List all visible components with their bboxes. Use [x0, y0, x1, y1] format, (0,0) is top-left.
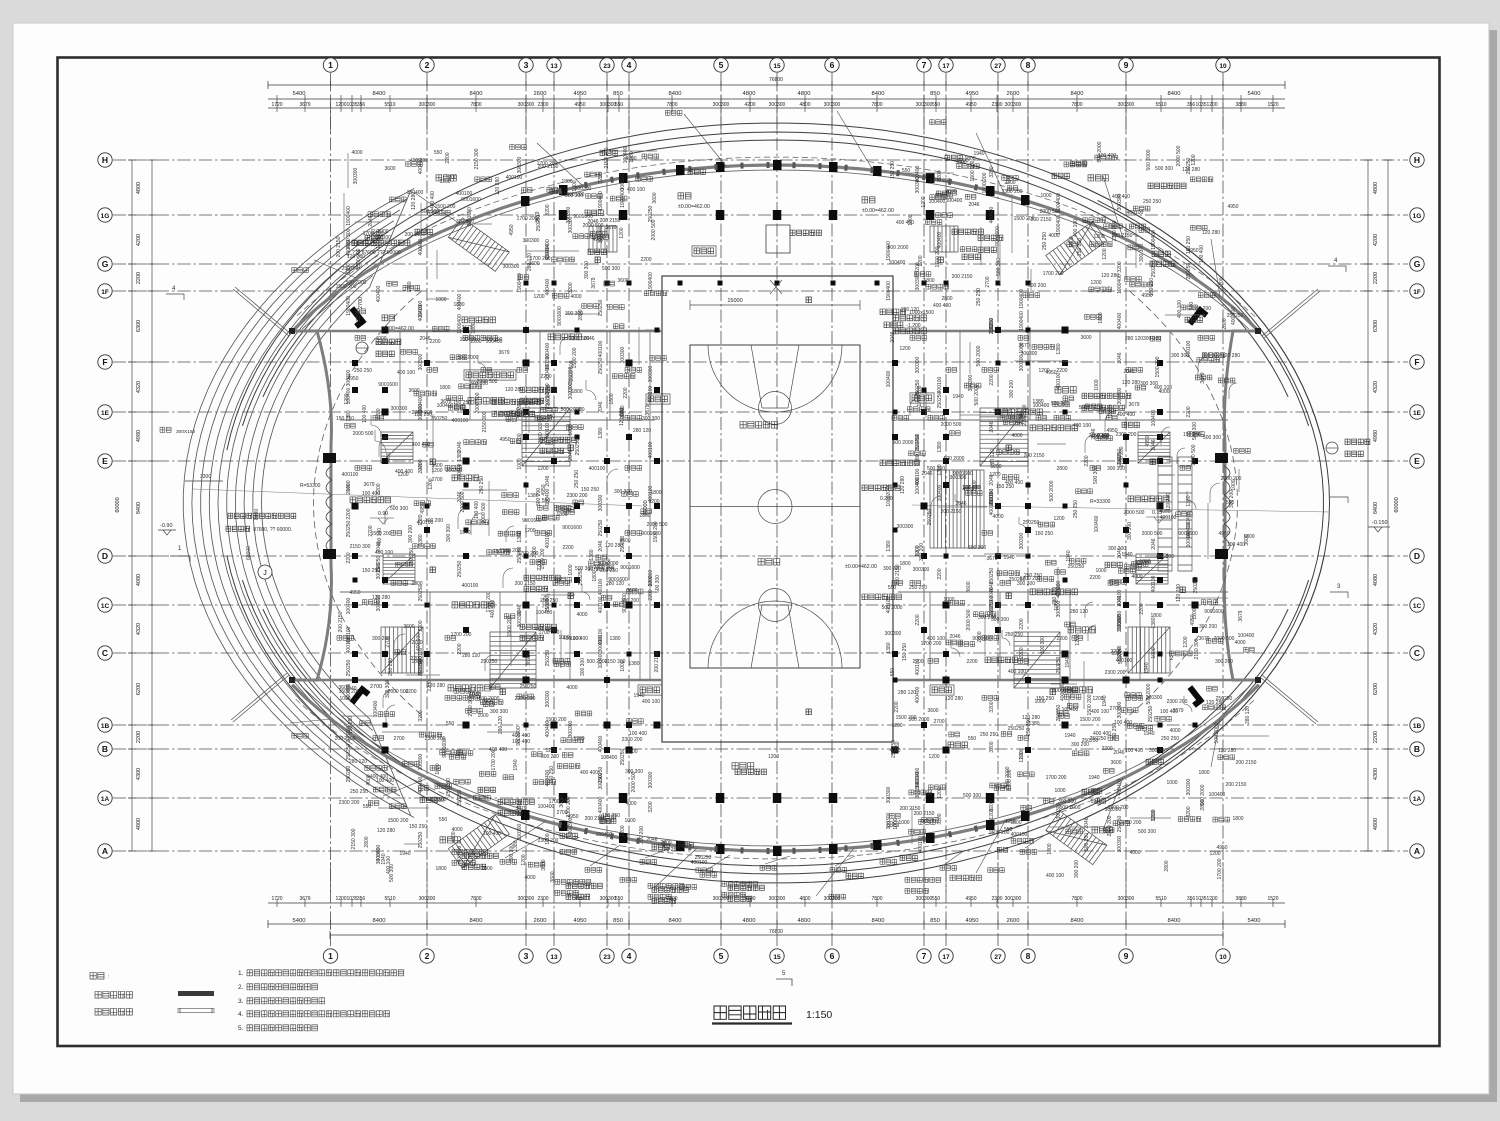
svg-text:5510: 5510: [384, 896, 395, 902]
svg-text:3679: 3679: [363, 482, 374, 488]
svg-text:9001600: 9001600: [622, 593, 628, 613]
svg-text:1940: 1940: [1088, 775, 1099, 781]
svg-text:±0.00=462.00: ±0.00=462.00: [678, 204, 710, 210]
svg-text:250250: 250250: [648, 205, 654, 222]
svg-text:400400: 400400: [989, 206, 995, 223]
svg-text:1380: 1380: [628, 661, 639, 667]
svg-text:500 300: 500 300: [390, 506, 408, 512]
svg-text:E: E: [1414, 456, 1420, 466]
svg-text:300 200: 300 200: [1074, 860, 1080, 878]
svg-text:100 400: 100 400: [512, 739, 530, 745]
svg-text:2046: 2046: [1151, 439, 1157, 450]
svg-text:250250: 250250: [1193, 576, 1199, 593]
svg-text:2000 500: 2000 500: [353, 431, 374, 437]
svg-text:250250: 250250: [1023, 520, 1040, 526]
svg-text:1000: 1000: [1117, 647, 1123, 658]
svg-text:1380: 1380: [1151, 617, 1157, 628]
svg-text:1380: 1380: [418, 534, 424, 545]
svg-text:300300: 300300: [915, 273, 921, 290]
svg-text:100 400: 100 400: [1125, 748, 1143, 754]
svg-text:300 200: 300 200: [1193, 306, 1211, 312]
svg-text:300300: 300300: [1005, 896, 1022, 902]
svg-text:3600: 3600: [966, 581, 972, 592]
svg-text:400400: 400400: [457, 293, 463, 310]
svg-text:100400: 100400: [460, 337, 477, 343]
svg-text:2200: 2200: [937, 568, 943, 579]
svg-text:300 300: 300 300: [1017, 581, 1035, 587]
svg-text:500 300: 500 300: [602, 266, 620, 272]
svg-text:300300: 300300: [1005, 102, 1022, 108]
svg-text:1380: 1380: [1117, 453, 1123, 464]
svg-text:300300: 300300: [648, 771, 654, 788]
svg-text:120 280: 120 280: [1218, 748, 1236, 754]
svg-text:300 300: 300 300: [580, 658, 586, 676]
svg-text:2800: 2800: [1164, 860, 1170, 871]
svg-text:3200: 3200: [937, 170, 943, 181]
svg-text:2200: 2200: [457, 643, 463, 654]
svg-text:300 200: 300 200: [408, 525, 414, 543]
svg-text:8400: 8400: [373, 91, 386, 97]
svg-text:4950: 4950: [349, 590, 360, 596]
svg-text:2046: 2046: [598, 401, 604, 412]
svg-text:1900400: 1900400: [517, 273, 523, 293]
svg-text:550: 550: [615, 896, 624, 902]
svg-text:1000: 1000: [624, 818, 635, 824]
svg-text:2046: 2046: [989, 587, 995, 598]
svg-text:4800: 4800: [1373, 182, 1379, 194]
svg-text:400100: 400100: [545, 531, 551, 548]
svg-text:250250: 250250: [346, 765, 352, 782]
svg-text:2300 200: 2300 200: [425, 736, 446, 742]
svg-text:1G: 1G: [1413, 213, 1422, 220]
svg-text:1900400: 1900400: [346, 296, 352, 316]
svg-text:300300: 300300: [1117, 835, 1123, 852]
svg-text:2700: 2700: [393, 736, 404, 742]
svg-text:100400: 100400: [545, 488, 551, 505]
svg-text:100400: 100400: [1209, 792, 1226, 798]
svg-text:500 300: 500 300: [575, 566, 593, 572]
svg-text:100400: 100400: [346, 597, 352, 614]
svg-text:400400: 400400: [915, 165, 921, 182]
svg-text:2700: 2700: [370, 684, 382, 690]
svg-text:2200: 2200: [623, 387, 629, 398]
svg-text:500 300: 500 300: [968, 545, 986, 551]
svg-text:1: 1: [328, 60, 333, 70]
svg-text:4950: 4950: [1187, 248, 1198, 254]
svg-text:400100: 400100: [648, 485, 654, 502]
svg-text:2200: 2200: [445, 152, 451, 163]
svg-text:250250: 250250: [927, 508, 933, 525]
svg-text:250250: 250250: [346, 743, 352, 760]
svg-text:400400: 400400: [545, 769, 551, 786]
svg-text:356: 356: [357, 102, 366, 108]
svg-text:2.: 2.: [238, 984, 244, 991]
svg-text:1800: 1800: [1198, 770, 1209, 776]
svg-text:7800: 7800: [666, 102, 677, 108]
svg-text:400100: 400100: [545, 422, 551, 439]
svg-text:2200: 2200: [376, 483, 382, 494]
svg-text:1380: 1380: [589, 549, 595, 560]
svg-text:400 100: 400 100: [1177, 300, 1183, 318]
svg-text:1800: 1800: [908, 214, 914, 225]
svg-text:2150 300: 2150 300: [474, 148, 480, 169]
svg-text:13: 13: [550, 63, 558, 70]
svg-text:2800: 2800: [1222, 318, 1228, 329]
svg-text:1200: 1200: [537, 466, 548, 472]
svg-text:4950: 4950: [1190, 614, 1196, 625]
svg-text:100 400: 100 400: [629, 731, 647, 737]
svg-text:1C: 1C: [101, 603, 110, 610]
svg-text:400 400: 400 400: [512, 733, 530, 739]
svg-text:150 250: 150 250: [996, 484, 1014, 490]
svg-text:1000x1500: 1000x1500: [909, 310, 934, 316]
svg-text:4950: 4950: [965, 896, 976, 902]
svg-text:1900400: 1900400: [886, 241, 892, 261]
svg-text:200 2150: 200 2150: [1031, 217, 1052, 223]
svg-text:400100: 400100: [506, 175, 523, 181]
svg-text:2150 300: 2150 300: [351, 828, 357, 849]
svg-text:300 300: 300 300: [1139, 244, 1145, 262]
svg-text:400400: 400400: [545, 243, 551, 260]
svg-text:2200: 2200: [1056, 636, 1067, 642]
svg-text:500 300: 500 300: [963, 793, 981, 799]
svg-text:1200: 1200: [1090, 280, 1101, 286]
svg-text:120 280: 120 280: [661, 847, 679, 853]
svg-text:9001600: 9001600: [378, 382, 398, 388]
svg-text:1F: 1F: [1413, 289, 1421, 296]
svg-text:100 400: 100 400: [483, 831, 501, 837]
svg-text:2300: 2300: [991, 102, 1002, 108]
svg-text:4800: 4800: [1373, 818, 1379, 830]
svg-text:1700 200: 1700 200: [1007, 769, 1013, 790]
svg-text:400100: 400100: [462, 583, 479, 589]
svg-text:300 300: 300 300: [446, 524, 452, 542]
svg-text:15: 15: [773, 63, 781, 70]
svg-text:1200: 1200: [990, 464, 1001, 470]
svg-text:2000 500: 2000 500: [1142, 531, 1163, 537]
svg-text:2200: 2200: [562, 545, 573, 551]
svg-text:2300: 2300: [537, 102, 548, 108]
svg-text:356: 356: [1187, 102, 1196, 108]
svg-text:4000: 4000: [524, 875, 535, 881]
svg-text:4950: 4950: [509, 224, 515, 235]
svg-text:1200: 1200: [545, 833, 551, 844]
svg-text:280 120: 280 120: [606, 581, 624, 587]
svg-text:2046: 2046: [1117, 352, 1123, 363]
svg-text:2: 2: [425, 60, 430, 70]
svg-text:2200: 2200: [1019, 647, 1025, 658]
svg-text:1200: 1200: [335, 102, 346, 108]
svg-text:4000: 4000: [351, 150, 362, 156]
svg-text:1940: 1940: [1143, 731, 1154, 737]
svg-text:250250: 250250: [481, 659, 498, 665]
svg-text:4950: 4950: [965, 102, 976, 108]
svg-text:3679: 3679: [526, 654, 532, 665]
svg-text:5400: 5400: [1248, 918, 1261, 924]
svg-text:4080: 4080: [1373, 574, 1379, 586]
svg-text:250 250: 250 250: [980, 732, 998, 738]
svg-text:400 100: 400 100: [1091, 709, 1109, 715]
svg-text:400100: 400100: [648, 441, 654, 458]
svg-text:4320: 4320: [1373, 623, 1379, 635]
svg-text:6300: 6300: [1373, 320, 1379, 332]
svg-text:2200: 2200: [136, 272, 142, 284]
svg-text:250250: 250250: [620, 748, 626, 765]
svg-text:250250: 250250: [1068, 564, 1085, 570]
svg-text:400 400: 400 400: [933, 303, 951, 309]
svg-text:4000: 4000: [566, 685, 577, 691]
svg-text:300 300: 300 300: [1127, 522, 1133, 540]
svg-text:2800: 2800: [1200, 799, 1206, 810]
svg-text:3: 3: [524, 951, 529, 961]
svg-text:250250: 250250: [1056, 704, 1062, 721]
svg-text:9001600: 9001600: [641, 531, 661, 537]
svg-text:250250: 250250: [376, 555, 382, 572]
svg-text:1700 200: 1700 200: [549, 799, 570, 805]
svg-text:2700: 2700: [358, 297, 364, 309]
svg-text:3200: 3200: [1186, 806, 1192, 817]
svg-text:300300: 300300: [1019, 532, 1025, 549]
svg-text:4000: 4000: [1234, 640, 1245, 646]
svg-text:400100: 400100: [346, 636, 352, 653]
svg-text:100 400: 100 400: [570, 636, 588, 642]
svg-text:250250: 250250: [418, 831, 424, 848]
svg-text:2200: 2200: [427, 680, 433, 691]
svg-text:200 2150: 200 2150: [900, 806, 921, 812]
svg-text:300300: 300300: [568, 817, 574, 834]
svg-text:280 120: 280 120: [898, 690, 916, 696]
svg-text:A: A: [1414, 846, 1420, 856]
svg-text:550: 550: [890, 668, 896, 677]
svg-text:500 2000: 500 2000: [1060, 805, 1081, 811]
svg-text:4950: 4950: [1227, 204, 1238, 210]
svg-text:200 2150: 200 2150: [1024, 453, 1045, 459]
svg-text:300300: 300300: [568, 720, 574, 737]
svg-text:4300: 4300: [1373, 768, 1379, 780]
svg-text:500 2000: 500 2000: [1049, 480, 1055, 501]
svg-text:2200: 2200: [640, 257, 651, 263]
svg-text:4950: 4950: [499, 437, 510, 443]
svg-text:400 400: 400 400: [490, 600, 496, 618]
svg-text:1900400: 1900400: [1056, 193, 1062, 213]
svg-text:3600: 3600: [384, 166, 395, 172]
svg-text:C: C: [1414, 648, 1420, 658]
svg-text:100400: 100400: [937, 484, 943, 501]
svg-text:1500 200: 1500 200: [1080, 717, 1101, 723]
svg-text:1E: 1E: [101, 410, 110, 417]
svg-text:1500 200: 1500 200: [336, 284, 357, 290]
svg-text:2800: 2800: [364, 836, 370, 847]
svg-text:27: 27: [994, 954, 1002, 961]
svg-text:300 300: 300 300: [1040, 636, 1046, 654]
svg-text:4000: 4000: [1011, 433, 1022, 439]
svg-text:1940: 1940: [973, 151, 984, 157]
svg-text:500 2000: 500 2000: [882, 605, 903, 611]
svg-text:2000 500: 2000 500: [941, 422, 962, 428]
svg-text:3679: 3679: [461, 325, 472, 331]
svg-text:R=33300: R=33300: [1090, 499, 1111, 505]
svg-text:250 250: 250 250: [354, 368, 372, 374]
svg-text:5: 5: [719, 951, 724, 961]
svg-text:2150 300: 2150 300: [482, 411, 488, 432]
svg-text:2200: 2200: [346, 552, 352, 563]
svg-text:250 250: 250 250: [1026, 718, 1032, 736]
svg-text:4800: 4800: [799, 896, 810, 902]
svg-text:1000: 1000: [898, 820, 909, 826]
svg-text:7: 7: [922, 60, 927, 70]
svg-text:3200: 3200: [989, 701, 995, 712]
svg-text:400100: 400100: [1011, 832, 1028, 838]
svg-text:1000: 1000: [1054, 788, 1065, 794]
svg-text:2700: 2700: [556, 810, 567, 816]
svg-text:1380: 1380: [517, 531, 523, 542]
svg-text:300300: 300300: [376, 594, 382, 611]
svg-text:100400: 100400: [457, 463, 463, 480]
svg-text:3200: 3200: [648, 801, 654, 812]
svg-text:1800: 1800: [1232, 816, 1243, 822]
svg-text:4950: 4950: [895, 741, 901, 752]
svg-text:4200: 4200: [744, 896, 755, 902]
svg-text:400400: 400400: [598, 796, 604, 813]
svg-text:3200: 3200: [568, 282, 574, 293]
svg-text:250250: 250250: [620, 535, 626, 552]
svg-text:356: 356: [357, 896, 366, 902]
svg-text:7800: 7800: [470, 102, 481, 108]
svg-text:B: B: [102, 744, 108, 754]
svg-text:7: 7: [922, 951, 927, 961]
svg-text:300 300: 300 300: [385, 680, 391, 698]
svg-text:2046: 2046: [646, 837, 657, 843]
svg-text:C: C: [102, 648, 108, 658]
svg-text:1900400: 1900400: [1056, 215, 1062, 235]
svg-text:300300: 300300: [769, 896, 786, 902]
svg-text:1000: 1000: [477, 713, 488, 719]
svg-text:2200: 2200: [915, 545, 921, 556]
svg-text:300300: 300300: [1117, 193, 1123, 210]
svg-text:120 280: 120 280: [495, 177, 501, 195]
svg-text:H: H: [102, 155, 108, 165]
svg-text:4980: 4980: [1373, 430, 1379, 442]
svg-text:300300: 300300: [886, 812, 892, 829]
svg-text:1700 200: 1700 200: [1043, 271, 1064, 277]
svg-text:250250: 250250: [989, 599, 995, 616]
svg-text:6: 6: [830, 60, 835, 70]
svg-text:2046: 2046: [457, 441, 463, 452]
svg-text:D: D: [102, 551, 108, 561]
svg-text:1940: 1940: [1066, 550, 1072, 561]
svg-text:250250: 250250: [431, 416, 448, 422]
svg-text:1200: 1200: [397, 472, 408, 478]
svg-text:8400: 8400: [1071, 918, 1084, 924]
svg-text:300300: 300300: [598, 226, 604, 243]
svg-text:7800: 7800: [470, 896, 481, 902]
svg-text:400 400: 400 400: [1231, 307, 1237, 325]
svg-text:300300: 300300: [620, 173, 626, 190]
svg-text:1940: 1940: [633, 693, 644, 699]
svg-text:8400: 8400: [1168, 91, 1181, 97]
svg-text:2300 200: 2300 200: [1221, 476, 1242, 482]
svg-text:1500 200: 1500 200: [970, 160, 976, 181]
svg-text:500 300: 500 300: [996, 258, 1002, 276]
svg-text:10: 10: [1219, 63, 1227, 70]
svg-text:1000: 1000: [1166, 780, 1177, 786]
svg-text:250250: 250250: [418, 659, 424, 676]
svg-text:3600: 3600: [927, 708, 938, 714]
svg-text:2200: 2200: [405, 689, 416, 695]
svg-text:2300 200: 2300 200: [567, 493, 588, 499]
svg-text:10: 10: [1219, 954, 1227, 961]
svg-text:4950: 4950: [574, 896, 585, 902]
svg-text:3200: 3200: [1117, 261, 1123, 272]
svg-text:2200: 2200: [532, 546, 538, 557]
svg-text:1940: 1940: [1003, 555, 1014, 561]
svg-text:1200: 1200: [937, 787, 943, 798]
svg-text:300 300: 300 300: [1149, 748, 1167, 754]
svg-text:1800: 1800: [923, 278, 934, 284]
svg-text:1940: 1940: [1064, 733, 1075, 739]
svg-text:300 200: 300 200: [372, 636, 390, 642]
svg-text:250250: 250250: [1148, 705, 1154, 722]
svg-text:200 2150: 200 2150: [538, 164, 559, 170]
svg-text:400 100: 400 100: [1008, 669, 1026, 675]
svg-text:5.: 5.: [238, 1025, 244, 1032]
svg-text:1200: 1200: [1038, 368, 1049, 374]
svg-text:250250: 250250: [1151, 260, 1157, 277]
svg-text:100400: 100400: [598, 651, 604, 668]
svg-text:400100: 400100: [1117, 589, 1123, 606]
svg-text:1700 200: 1700 200: [1046, 775, 1067, 781]
svg-text:2000 500: 2000 500: [631, 771, 637, 792]
svg-text:-1.200: -1.200: [906, 323, 920, 329]
svg-text:250250: 250250: [1186, 157, 1192, 174]
svg-text:850: 850: [613, 91, 623, 97]
svg-text:3679: 3679: [591, 277, 597, 288]
svg-text:4950: 4950: [1141, 293, 1152, 299]
svg-text:1940: 1940: [399, 851, 410, 857]
svg-text:4950: 4950: [966, 91, 979, 97]
svg-text:250 250: 250 250: [909, 585, 927, 591]
svg-text:300300: 300300: [897, 524, 914, 530]
svg-text:2300: 2300: [991, 896, 1002, 902]
svg-text:250250: 250250: [545, 595, 551, 612]
svg-text:2000 500: 2000 500: [966, 609, 972, 630]
svg-text:300 300: 300 300: [1107, 466, 1125, 472]
svg-text:1500 200: 1500 200: [371, 531, 392, 537]
svg-text:1380: 1380: [1032, 399, 1043, 405]
svg-text:4000: 4000: [576, 612, 587, 618]
svg-text:0.15: 0.15: [1152, 510, 1162, 516]
svg-text:250250: 250250: [457, 789, 463, 806]
svg-text:1200: 1200: [524, 528, 535, 534]
svg-text:3300: 3300: [200, 474, 211, 480]
svg-text:250 250: 250 250: [388, 658, 394, 676]
svg-text:E: E: [102, 456, 108, 466]
svg-text:2200: 2200: [1084, 455, 1090, 466]
svg-text:2200: 2200: [1219, 277, 1225, 288]
svg-text:1000: 1000: [620, 405, 626, 416]
svg-text:550: 550: [615, 102, 624, 108]
svg-text:3679: 3679: [498, 350, 509, 356]
svg-text:100400: 100400: [1186, 530, 1192, 547]
svg-text:2046: 2046: [1151, 538, 1157, 549]
svg-text:2046: 2046: [457, 491, 463, 502]
svg-text:300300: 300300: [418, 753, 424, 770]
svg-text:400 400: 400 400: [370, 774, 388, 780]
svg-text:F: F: [102, 357, 107, 367]
svg-text:2200: 2200: [1186, 406, 1192, 417]
svg-text:300300: 300300: [518, 896, 535, 902]
svg-text:400100: 400100: [589, 466, 606, 472]
